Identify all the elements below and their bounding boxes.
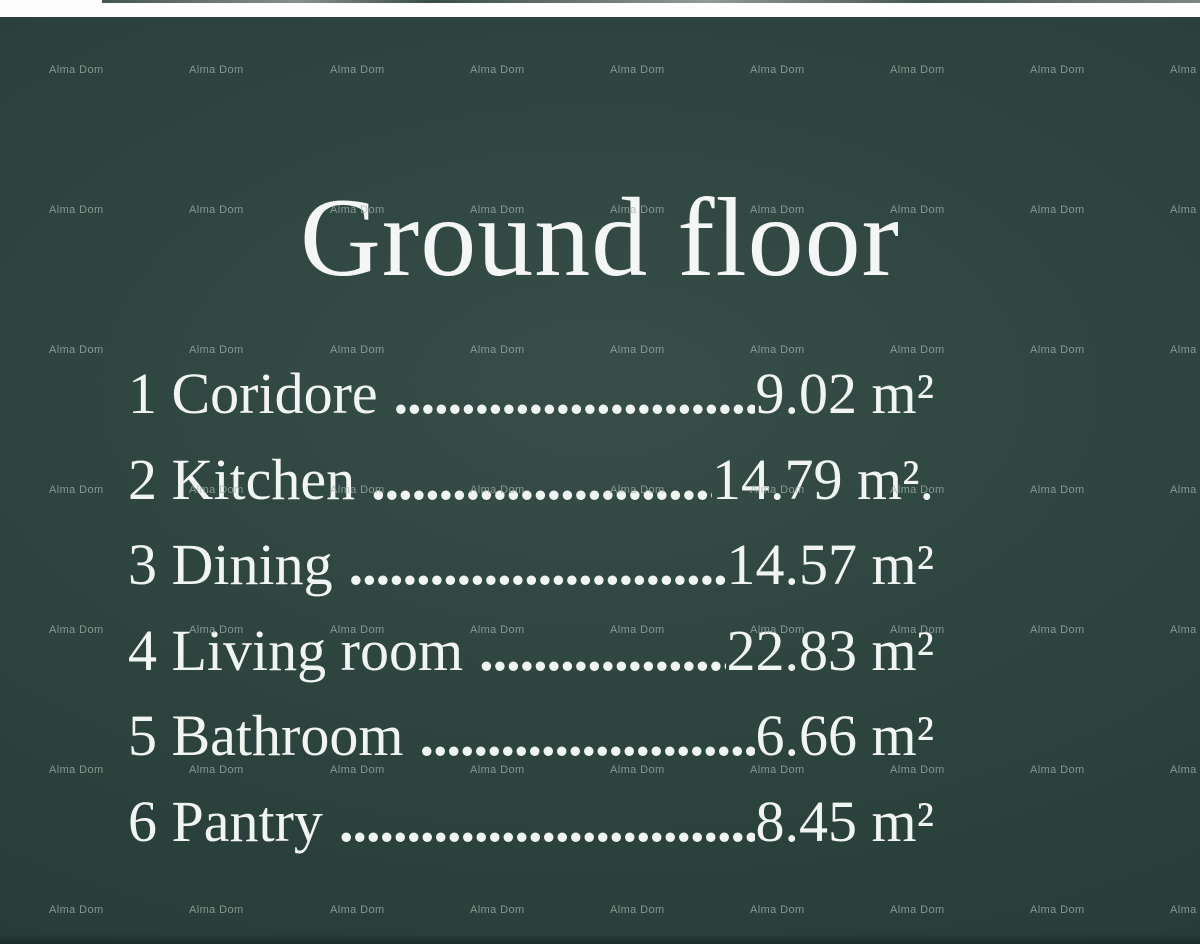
flyer-page: Ground floor 1 Coridore ................… xyxy=(0,0,1200,944)
room-area: 9.02 m² xyxy=(755,351,934,437)
room-label: 2 Kitchen xyxy=(128,437,355,523)
room-label: 1 Coridore xyxy=(128,351,378,437)
room-area: 8.45 m² xyxy=(755,779,934,865)
page-title: Ground floor xyxy=(0,182,1200,294)
board-content: Ground floor 1 Coridore ................… xyxy=(0,17,1200,944)
dotted-leader: .................................... xyxy=(479,608,726,694)
dotted-leader: .................................... xyxy=(371,437,712,523)
room-row: 3 Dining ...............................… xyxy=(128,522,934,608)
room-area: 14.57 m² xyxy=(726,522,934,608)
scan-edge-artifact xyxy=(102,0,1200,3)
dotted-leader: .................................... xyxy=(349,522,727,608)
room-row: 4 Living room ..........................… xyxy=(128,608,934,694)
dotted-leader: .................................... xyxy=(339,779,756,865)
room-label: 5 Bathroom xyxy=(128,693,403,779)
room-row: 6 Pantry ...............................… xyxy=(128,779,934,865)
room-area: 6.66 m² xyxy=(755,693,934,779)
room-row: 5 Bathroom .............................… xyxy=(128,693,934,779)
room-row: 1 Coridore .............................… xyxy=(128,351,934,437)
room-area: 22.83 m² xyxy=(726,608,934,694)
room-label: 3 Dining xyxy=(128,522,333,608)
room-row: 2 Kitchen ..............................… xyxy=(128,437,934,523)
room-label: 6 Pantry xyxy=(128,779,323,865)
room-label: 4 Living room xyxy=(128,608,463,694)
board-background: Ground floor 1 Coridore ................… xyxy=(0,17,1200,944)
room-list: 1 Coridore .............................… xyxy=(128,351,934,864)
room-area: 14.79 m². xyxy=(712,437,934,523)
dotted-leader: .................................... xyxy=(394,351,756,437)
dotted-leader: .................................... xyxy=(419,693,755,779)
